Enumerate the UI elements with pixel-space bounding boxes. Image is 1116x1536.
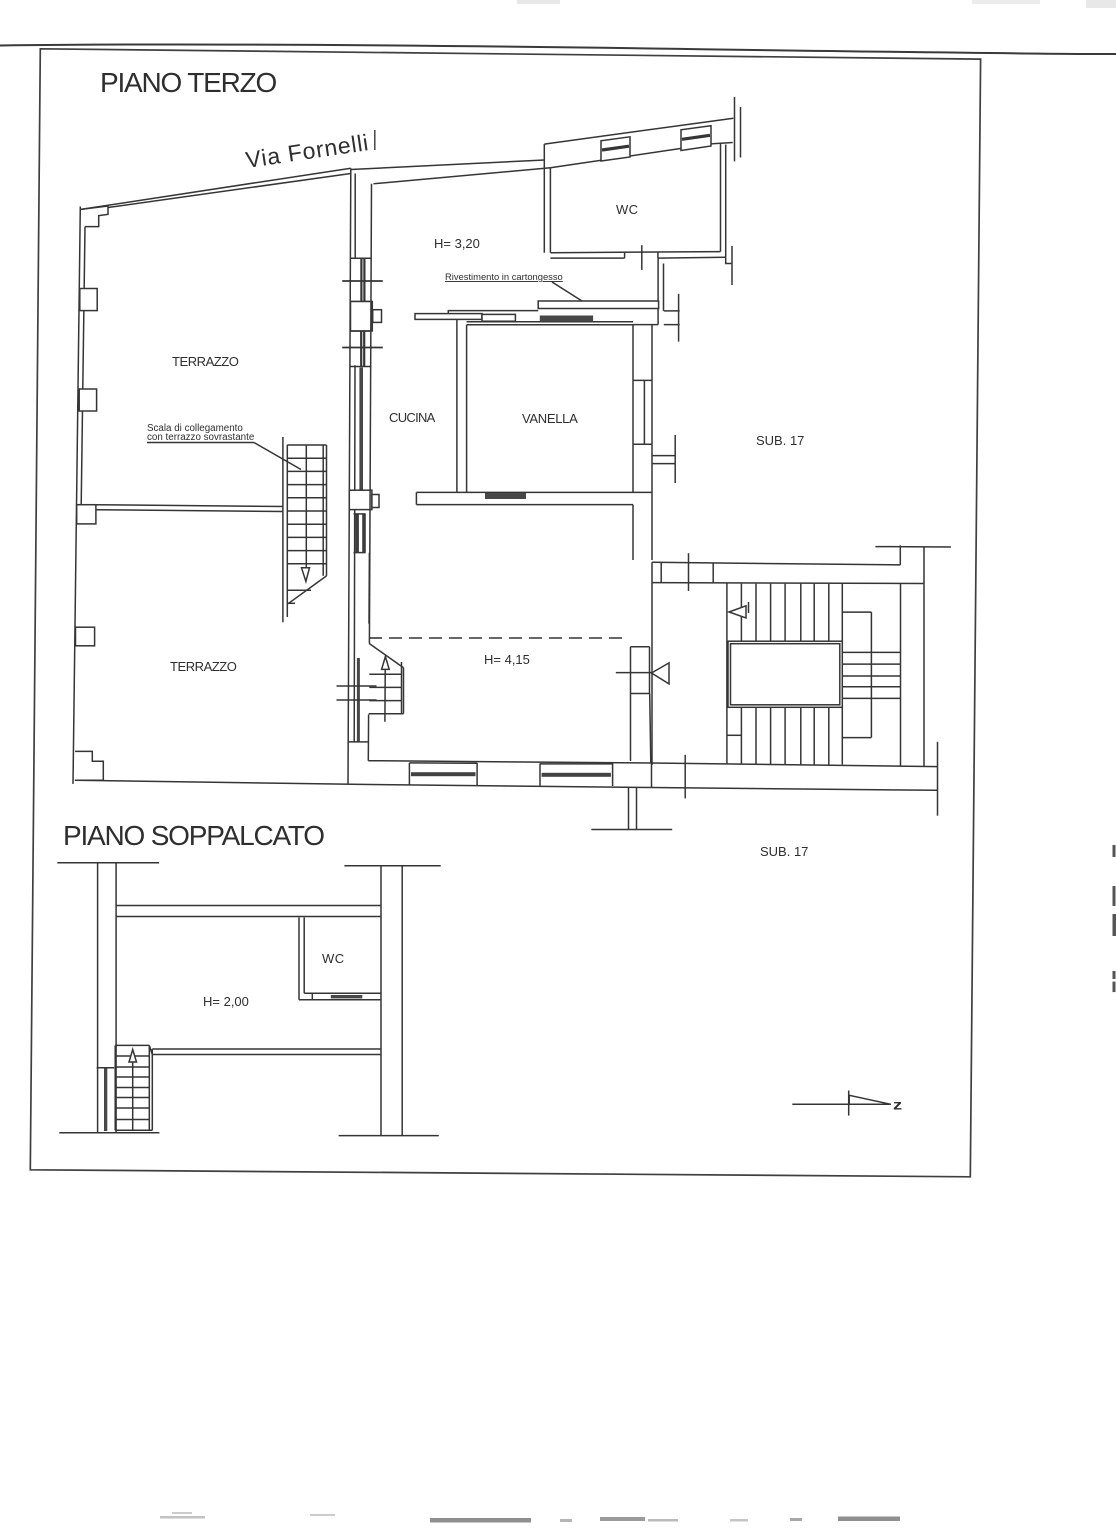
svg-text:WC: WC bbox=[322, 951, 345, 966]
svg-text:Rivestimento in cartongesso: Rivestimento in cartongesso bbox=[445, 271, 563, 282]
svg-text:con terrazzo sovrastante: con terrazzo sovrastante bbox=[147, 432, 255, 443]
svg-text:H= 2,00: H= 2,00 bbox=[203, 994, 249, 1009]
svg-text:z: z bbox=[893, 1098, 902, 1113]
svg-text:VANELLA: VANELLA bbox=[522, 411, 578, 426]
svg-text:PIANO TERZO: PIANO TERZO bbox=[100, 67, 277, 98]
svg-text:SUB. 17: SUB. 17 bbox=[760, 844, 808, 859]
svg-text:H= 4,15: H= 4,15 bbox=[484, 652, 530, 667]
svg-text:TERRAZZO: TERRAZZO bbox=[170, 659, 237, 674]
svg-text:TERRAZZO: TERRAZZO bbox=[172, 354, 239, 369]
svg-text:SUB. 17: SUB. 17 bbox=[756, 433, 804, 448]
svg-text:PIANO SOPPALCATO: PIANO SOPPALCATO bbox=[63, 820, 324, 851]
svg-text:H= 3,20: H= 3,20 bbox=[434, 236, 480, 251]
svg-text:CUCINA: CUCINA bbox=[389, 410, 436, 425]
svg-text:WC: WC bbox=[616, 202, 638, 217]
